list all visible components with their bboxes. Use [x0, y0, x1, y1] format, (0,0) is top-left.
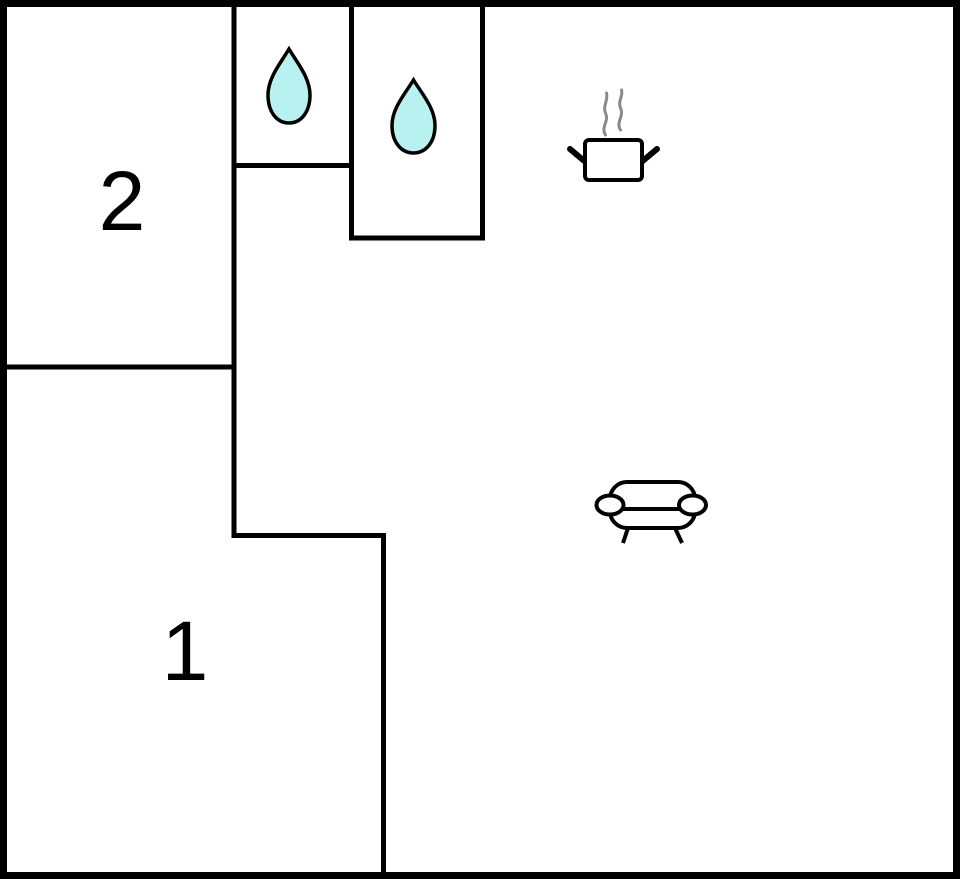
water-drop-icon — [392, 80, 435, 153]
steam-line-icon — [604, 93, 607, 135]
sofa-left-leg — [623, 528, 628, 543]
sofa-right-armrest — [679, 496, 706, 515]
steam-line-icon — [619, 90, 622, 130]
sofa-left-armrest — [597, 496, 624, 515]
floor-plan: 2 1 — [0, 0, 960, 879]
steaming-pot-icon — [570, 90, 657, 180]
water-drop-shape — [392, 80, 435, 153]
pot-body — [585, 140, 642, 180]
sofa-icon — [597, 482, 707, 543]
floor-plan-canvas: 2 1 — [0, 0, 960, 879]
sofa-right-leg — [675, 528, 682, 543]
water-drop-shape — [268, 49, 310, 123]
water-drop-icon — [268, 49, 310, 123]
room-2-label: 2 — [99, 154, 146, 248]
room-1-label: 1 — [162, 604, 209, 698]
